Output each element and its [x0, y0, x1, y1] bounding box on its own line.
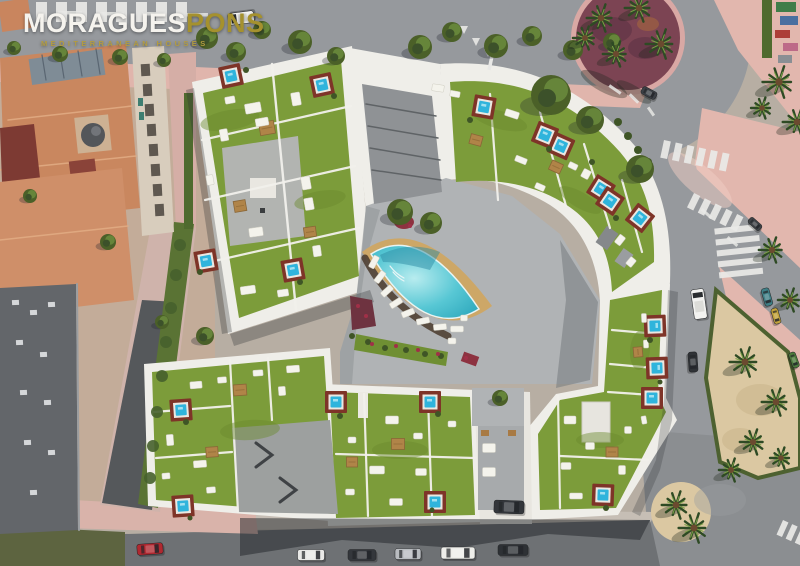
- palm-trunk: [582, 35, 588, 41]
- bush: [614, 118, 622, 126]
- bush: [183, 419, 189, 425]
- car-rear-window: [499, 502, 503, 512]
- car-rear-window: [446, 549, 450, 558]
- jacuzzi-water: [425, 397, 436, 408]
- bush: [188, 516, 193, 521]
- car: [686, 352, 698, 374]
- car-rear-window: [141, 545, 145, 553]
- car-rear-window: [503, 546, 507, 554]
- terrace-furniture: [483, 468, 496, 477]
- tree-shade: [631, 165, 644, 178]
- terrace-furniture: [348, 437, 356, 443]
- jacuzzi-water: [647, 393, 658, 404]
- terrace-furniture: [461, 315, 468, 321]
- jacuzzi-water: [597, 489, 608, 500]
- bush: [647, 337, 653, 343]
- hedge-bush: [170, 269, 182, 281]
- flower-bed: [356, 304, 360, 308]
- bush: [467, 117, 473, 123]
- palm-trunk: [673, 502, 680, 509]
- palm-trunk: [750, 439, 756, 445]
- palm-trunk: [778, 455, 784, 461]
- flower-bed: [416, 348, 420, 352]
- terrace-furniture: [483, 444, 496, 453]
- terrace-furniture: [448, 338, 456, 344]
- palm-trunk: [759, 105, 765, 111]
- pergola-deck: [347, 457, 358, 467]
- bush: [403, 347, 409, 353]
- pergola-slat: [208, 452, 216, 453]
- tree-shade: [115, 55, 122, 62]
- hedge-bush: [151, 406, 163, 418]
- bush: [435, 411, 441, 417]
- tree-shade: [538, 89, 556, 107]
- hedge-bush: [160, 336, 172, 348]
- market-stall-blue: [780, 16, 798, 25]
- jacuzzi-sparkle: [333, 399, 338, 402]
- palm-trunk: [598, 15, 605, 22]
- tree-shade: [330, 53, 338, 61]
- market-stall-red: [775, 30, 790, 38]
- aerial-scene: [0, 0, 800, 566]
- hedge-bush: [174, 239, 186, 251]
- brand-wordmark: MORAGUESPONS: [23, 10, 265, 37]
- terrace-furniture: [641, 416, 647, 425]
- palm-trunk: [773, 399, 780, 406]
- gray-building: [0, 284, 78, 534]
- ac-unit: [16, 340, 23, 345]
- grass-mottle: [576, 432, 624, 448]
- terrace-furniture: [219, 128, 229, 141]
- terrace-furniture: [346, 489, 355, 495]
- terrace-furniture: [190, 381, 202, 389]
- bush: [624, 132, 632, 140]
- hedge-bush: [156, 370, 168, 382]
- terrace-furniture: [224, 96, 235, 105]
- car-windshield: [316, 551, 320, 560]
- car: [441, 547, 477, 561]
- jacuzzi: [171, 494, 194, 517]
- flower-bed: [436, 352, 440, 356]
- car-windshield: [464, 548, 469, 558]
- terrace-furniture: [432, 84, 445, 93]
- market-stall-green: [776, 2, 796, 12]
- tree-shade: [412, 43, 423, 54]
- flower-bed: [364, 314, 368, 318]
- bush: [382, 345, 388, 351]
- car-windshield: [367, 551, 371, 560]
- tree-shade: [103, 240, 110, 247]
- terrace-furniture: [390, 499, 403, 506]
- tree-shade: [25, 194, 31, 200]
- pergola-deck: [303, 226, 316, 238]
- pergola-deck: [233, 384, 247, 396]
- ac-unit: [30, 490, 37, 495]
- flower-bed: [370, 342, 374, 346]
- balcony-teal: [138, 98, 143, 106]
- jacuzzi-water: [200, 255, 213, 268]
- palm-trunk: [690, 524, 697, 531]
- terrace-furniture: [217, 377, 226, 384]
- jacuzzi-water: [175, 404, 187, 416]
- car-roof: [306, 551, 315, 558]
- terrace-furniture: [193, 460, 206, 468]
- brand-tagline: MEDITERRANEAN HOUSES: [23, 40, 265, 48]
- palm-trunk: [741, 358, 748, 365]
- flower-bed: [408, 224, 412, 228]
- patio-mat2: [508, 430, 516, 436]
- jacuzzi-water: [649, 320, 660, 331]
- jacuzzi: [419, 391, 441, 413]
- bush: [197, 269, 203, 275]
- terrace-furniture: [278, 386, 286, 395]
- car-windshield: [514, 502, 519, 513]
- car-rear-window: [302, 551, 305, 559]
- palm-trunk: [775, 78, 782, 85]
- ac-unit: [24, 440, 31, 445]
- patio-mat1: [481, 430, 489, 436]
- tree-shade: [199, 333, 207, 341]
- car: [348, 550, 378, 563]
- jacuzzi: [641, 387, 663, 409]
- roundabout-mottle3: [637, 17, 659, 31]
- palm-trunk: [787, 297, 793, 303]
- jacuzzi-water: [430, 497, 441, 508]
- terrace-furniture: [414, 433, 423, 439]
- car-windshield: [154, 544, 159, 553]
- terrace-furniture: [370, 466, 385, 474]
- market-stall-pink: [783, 43, 798, 51]
- ac-unit: [30, 310, 37, 315]
- car-roof: [452, 549, 464, 557]
- red-roof1: [0, 124, 40, 182]
- palm-trunk: [636, 5, 643, 12]
- terrace-furniture: [248, 227, 263, 238]
- dome-highlight: [91, 126, 101, 136]
- jacuzzi-sparkle: [657, 365, 660, 370]
- terrace-furniture: [570, 493, 583, 499]
- car-rear-window: [352, 551, 355, 559]
- block-a-vent: [260, 208, 265, 213]
- pergola-slat: [638, 349, 639, 355]
- jacuzzi: [193, 248, 218, 273]
- flower-bed: [394, 344, 398, 348]
- ac-unit: [44, 400, 51, 405]
- terrace-furniture: [206, 174, 215, 185]
- sidewalk-mottle: [694, 484, 746, 516]
- car-windshield: [518, 546, 523, 555]
- terrace-furniture: [304, 197, 315, 210]
- van-roof: [694, 300, 704, 312]
- jacuzzi: [424, 491, 446, 513]
- terrace-furniture: [451, 326, 464, 332]
- car-roof: [357, 551, 367, 558]
- brand-primary: MORAGUES: [23, 8, 186, 38]
- bush: [243, 67, 249, 73]
- terrace-furniture: [253, 370, 263, 377]
- balcony-slot: [153, 184, 163, 196]
- flower-bed: [464, 356, 468, 360]
- market-hedge: [762, 0, 772, 58]
- car-roof: [145, 545, 154, 553]
- terrace-furniture: [166, 434, 174, 445]
- pergola-deck: [606, 447, 618, 457]
- jacuzzi-water: [331, 397, 342, 408]
- bush: [331, 93, 337, 99]
- balcony-slot: [155, 204, 165, 216]
- car-windshield: [413, 550, 417, 559]
- jacuzzi: [218, 63, 244, 89]
- terrace-furniture: [619, 466, 626, 475]
- tree-shade: [230, 49, 239, 58]
- bush: [430, 508, 435, 513]
- bush: [634, 146, 642, 154]
- jacuzzi: [592, 484, 615, 507]
- terrace-furniture: [240, 285, 256, 295]
- hedge-bush: [165, 302, 177, 314]
- palm-trunk: [657, 40, 664, 47]
- bush: [603, 505, 609, 511]
- ac-unit: [48, 302, 55, 307]
- pergola-slat: [236, 390, 245, 391]
- ac-unit: [20, 390, 27, 395]
- tree-shade: [526, 33, 535, 42]
- tree-shade: [488, 42, 499, 53]
- tree-shade: [392, 208, 404, 220]
- bush: [349, 333, 355, 339]
- bush: [422, 351, 428, 357]
- brand-secondary: PONS: [186, 8, 265, 38]
- jacuzzi-water: [651, 362, 662, 373]
- palm-trunk: [769, 247, 775, 253]
- car-roof: [504, 502, 515, 512]
- car-windshield: [690, 365, 697, 369]
- terrace-furniture: [641, 313, 646, 322]
- balcony-slot: [143, 84, 153, 96]
- hedge-bush: [147, 440, 159, 452]
- car-rear-window: [690, 355, 696, 358]
- jacuzzi: [325, 391, 347, 413]
- car-rear-window: [399, 550, 402, 558]
- terrace-furniture: [448, 421, 456, 427]
- tree-shade: [581, 116, 594, 129]
- bush: [297, 279, 303, 285]
- terrace-furniture: [286, 365, 299, 373]
- bush: [337, 413, 343, 419]
- ac-unit: [48, 450, 55, 455]
- jacuzzi: [280, 257, 305, 282]
- jacuzzi-water: [224, 69, 237, 82]
- tree-shade: [292, 38, 303, 49]
- terrace-furniture: [277, 289, 289, 297]
- jacuzzi-water: [478, 101, 491, 114]
- jacuzzi-water: [177, 500, 189, 512]
- bush: [589, 159, 595, 165]
- scene-root: [0, 0, 800, 566]
- jacuzzi-sparkle: [180, 503, 185, 506]
- balcony-slot: [147, 124, 157, 136]
- balcony-slot: [145, 104, 155, 116]
- car: [498, 545, 530, 558]
- terrace-furniture: [625, 427, 632, 434]
- tree-shade: [9, 46, 15, 52]
- terrace-furniture: [561, 463, 571, 470]
- pergola-deck: [206, 447, 219, 458]
- jacuzzi: [169, 398, 192, 421]
- planter-southwest: [350, 296, 376, 330]
- jacuzzi: [644, 315, 667, 338]
- jacuzzi-water: [315, 78, 328, 91]
- hedge-bush: [144, 472, 156, 484]
- jacuzzi-sparkle: [432, 499, 437, 502]
- jacuzzi-sparkle: [178, 407, 183, 410]
- connector-roof: [362, 84, 442, 204]
- jacuzzi-sparkle: [600, 492, 605, 495]
- terrace-furniture: [162, 473, 170, 480]
- balcony-teal: [139, 112, 144, 120]
- bush: [613, 215, 619, 221]
- brand-logo: MORAGUESPONS MEDITERRANEAN HOUSES: [23, 10, 265, 48]
- terrace-furniture: [206, 487, 215, 494]
- jacuzzi: [471, 94, 496, 119]
- terrace-furniture: [312, 245, 321, 257]
- balcony-slot: [149, 144, 159, 156]
- terrace-furniture: [564, 416, 576, 424]
- jacuzzi: [646, 357, 669, 380]
- bush: [546, 146, 552, 152]
- pergola-deck: [392, 439, 405, 450]
- ac-unit: [12, 300, 19, 305]
- car-roof: [404, 550, 413, 557]
- pergola-deck: [633, 347, 643, 358]
- pergola-deck: [233, 200, 247, 213]
- ac-unit: [40, 352, 47, 357]
- terrace-furniture: [433, 323, 447, 330]
- car: [395, 549, 423, 562]
- tree-shade: [159, 58, 165, 64]
- palm-trunk: [728, 467, 734, 473]
- car-roof: [508, 546, 518, 553]
- terrace-furniture: [290, 92, 301, 106]
- car: [137, 543, 165, 558]
- terrace-furniture: [586, 443, 595, 450]
- car: [298, 550, 327, 563]
- jacuzzi-water: [287, 264, 300, 277]
- palm-trunk: [613, 51, 619, 57]
- terrace-furniture: [300, 176, 311, 190]
- jacuzzi: [309, 72, 335, 98]
- car: [494, 500, 526, 516]
- jacuzzi-sparkle: [427, 399, 432, 402]
- aerial-render-stage: MORAGUESPONS MEDITERRANEAN HOUSES: [0, 0, 800, 566]
- car-roof: [690, 358, 696, 365]
- tree-shade: [157, 320, 163, 326]
- terrace-furniture: [416, 469, 427, 476]
- bush: [658, 380, 663, 385]
- balcony-slot: [141, 64, 151, 76]
- market-stall-gray: [778, 55, 792, 63]
- tree-shade: [424, 220, 434, 230]
- jacuzzi-sparkle: [649, 395, 654, 398]
- balcony-slot: [151, 164, 161, 176]
- terrace-furniture: [386, 416, 399, 424]
- tree-shade: [446, 29, 455, 38]
- tree-shade: [55, 52, 62, 59]
- tree-shade: [495, 396, 502, 403]
- jacuzzi-sparkle: [655, 323, 658, 328]
